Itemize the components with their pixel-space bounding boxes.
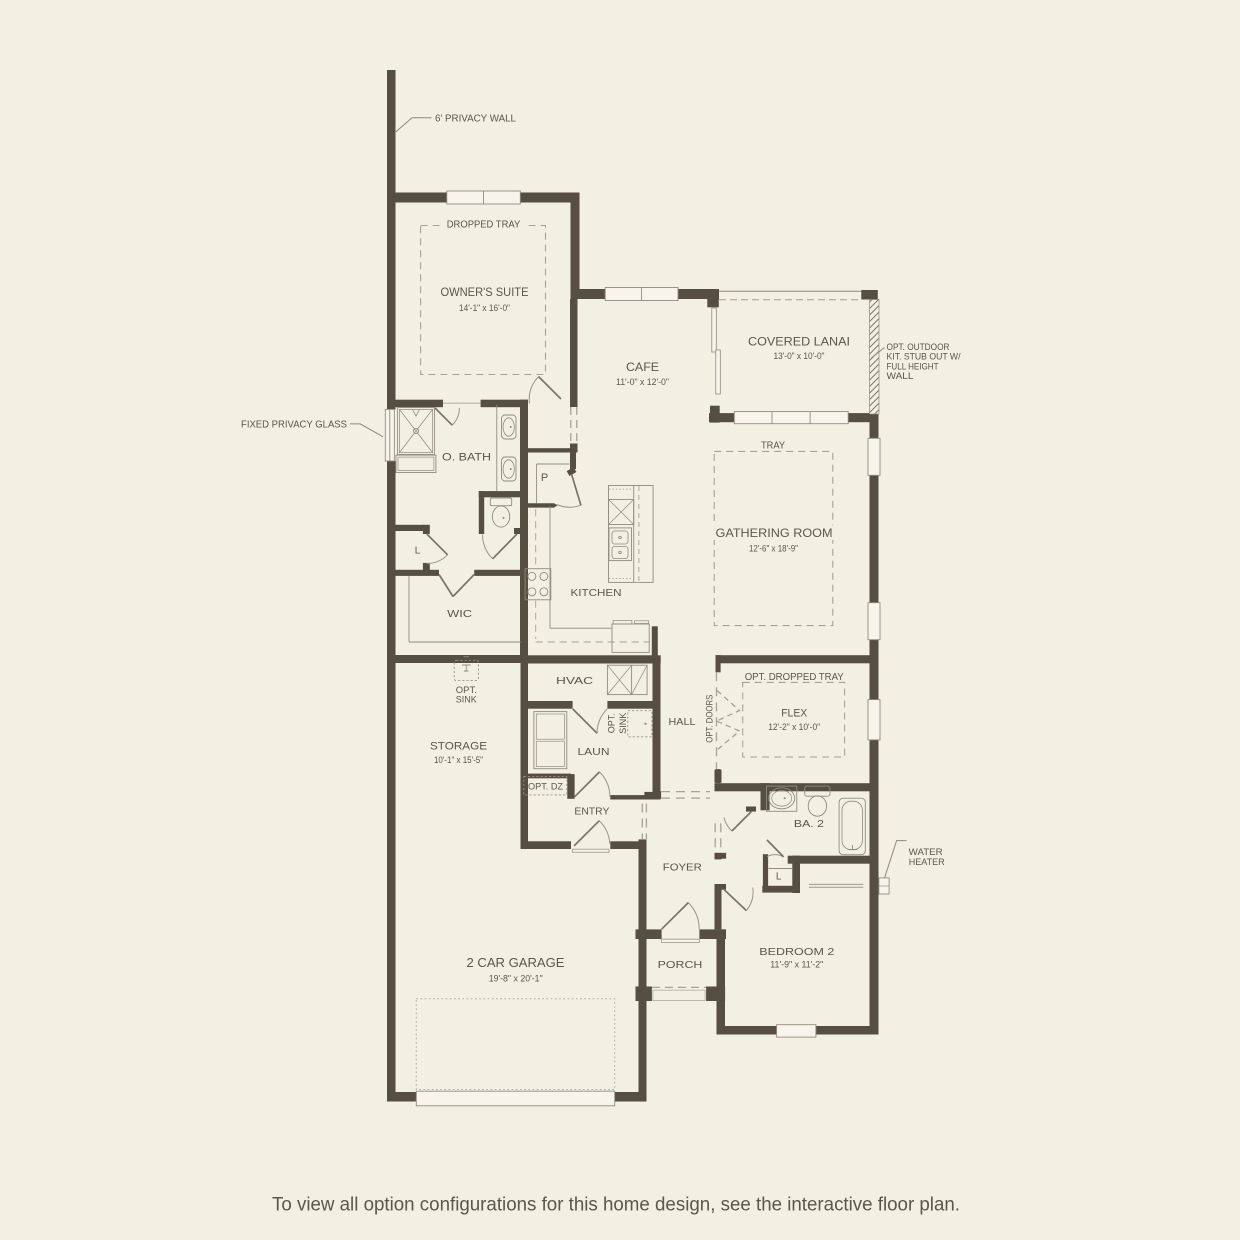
svg-text:DROPPED TRAY: DROPPED TRAY [447, 220, 521, 231]
svg-text:KITCHEN: KITCHEN [571, 587, 622, 599]
svg-text:OPT. DROPPED TRAY: OPT. DROPPED TRAY [745, 672, 845, 683]
svg-text:11'-9" x 11'-2": 11'-9" x 11'-2" [770, 960, 823, 970]
svg-text:13'-0" x 10'-0": 13'-0" x 10'-0" [774, 351, 825, 361]
svg-text:OPT.: OPT. [456, 685, 477, 695]
svg-text:OPT. DZ: OPT. DZ [528, 782, 563, 792]
svg-text:FOYER: FOYER [663, 863, 702, 874]
svg-text:14'-1" x 16'-0": 14'-1" x 16'-0" [459, 303, 510, 313]
svg-text:SINK: SINK [618, 713, 628, 734]
svg-text:BEDROOM 2: BEDROOM 2 [759, 946, 834, 958]
svg-text:PORCH: PORCH [658, 959, 703, 971]
svg-text:LAUN: LAUN [578, 747, 610, 758]
svg-text:FULL HEIGHT: FULL HEIGHT [887, 361, 939, 371]
svg-text:12'-6" x 18'-9": 12'-6" x 18'-9" [749, 544, 798, 554]
svg-text:10'-1" x 15'-5": 10'-1" x 15'-5" [434, 755, 483, 765]
svg-text:6' PRIVACY WALL: 6' PRIVACY WALL [435, 112, 516, 124]
svg-text:L: L [776, 871, 782, 882]
svg-text:STORAGE: STORAGE [430, 740, 487, 752]
svg-text:WATER: WATER [909, 847, 943, 857]
svg-text:HVAC: HVAC [556, 676, 594, 687]
svg-text:12'-2" x 10'-0": 12'-2" x 10'-0" [768, 722, 820, 732]
svg-text:L: L [415, 545, 421, 556]
svg-text:SINK: SINK [456, 694, 478, 704]
svg-text:FLEX: FLEX [781, 708, 808, 720]
svg-text:TRAY: TRAY [761, 440, 785, 451]
svg-text:FIXED PRIVACY GLASS: FIXED PRIVACY GLASS [241, 419, 347, 431]
svg-text:KIT. STUB OUT W/: KIT. STUB OUT W/ [887, 352, 961, 362]
svg-text:OPT.: OPT. [607, 713, 617, 733]
svg-text:WIC: WIC [447, 608, 472, 620]
svg-text:HEATER: HEATER [909, 857, 945, 867]
svg-text:BA. 2: BA. 2 [794, 819, 824, 830]
svg-text:O. BATH: O. BATH [442, 452, 491, 464]
svg-text:To view all option configurati: To view all option configurations for th… [272, 1194, 960, 1216]
svg-text:HALL: HALL [669, 717, 696, 728]
svg-text:COVERED LANAI: COVERED LANAI [748, 336, 850, 349]
svg-text:ENTRY: ENTRY [574, 806, 609, 817]
svg-text:2 CAR GARAGE: 2 CAR GARAGE [467, 955, 565, 970]
svg-text:OPT. DOORS: OPT. DOORS [705, 695, 715, 743]
svg-text:CAFE: CAFE [626, 361, 659, 374]
svg-text:P: P [541, 472, 548, 484]
svg-text:19'-8" x 20'-1": 19'-8" x 20'-1" [489, 973, 543, 983]
svg-text:OPT. OUTDOOR: OPT. OUTDOOR [887, 342, 950, 352]
svg-text:OWNER'S SUITE: OWNER'S SUITE [441, 286, 529, 299]
svg-text:11'-0" x 12'-0": 11'-0" x 12'-0" [616, 377, 669, 387]
svg-text:WALL: WALL [887, 371, 914, 381]
svg-text:GATHERING ROOM: GATHERING ROOM [716, 527, 833, 540]
